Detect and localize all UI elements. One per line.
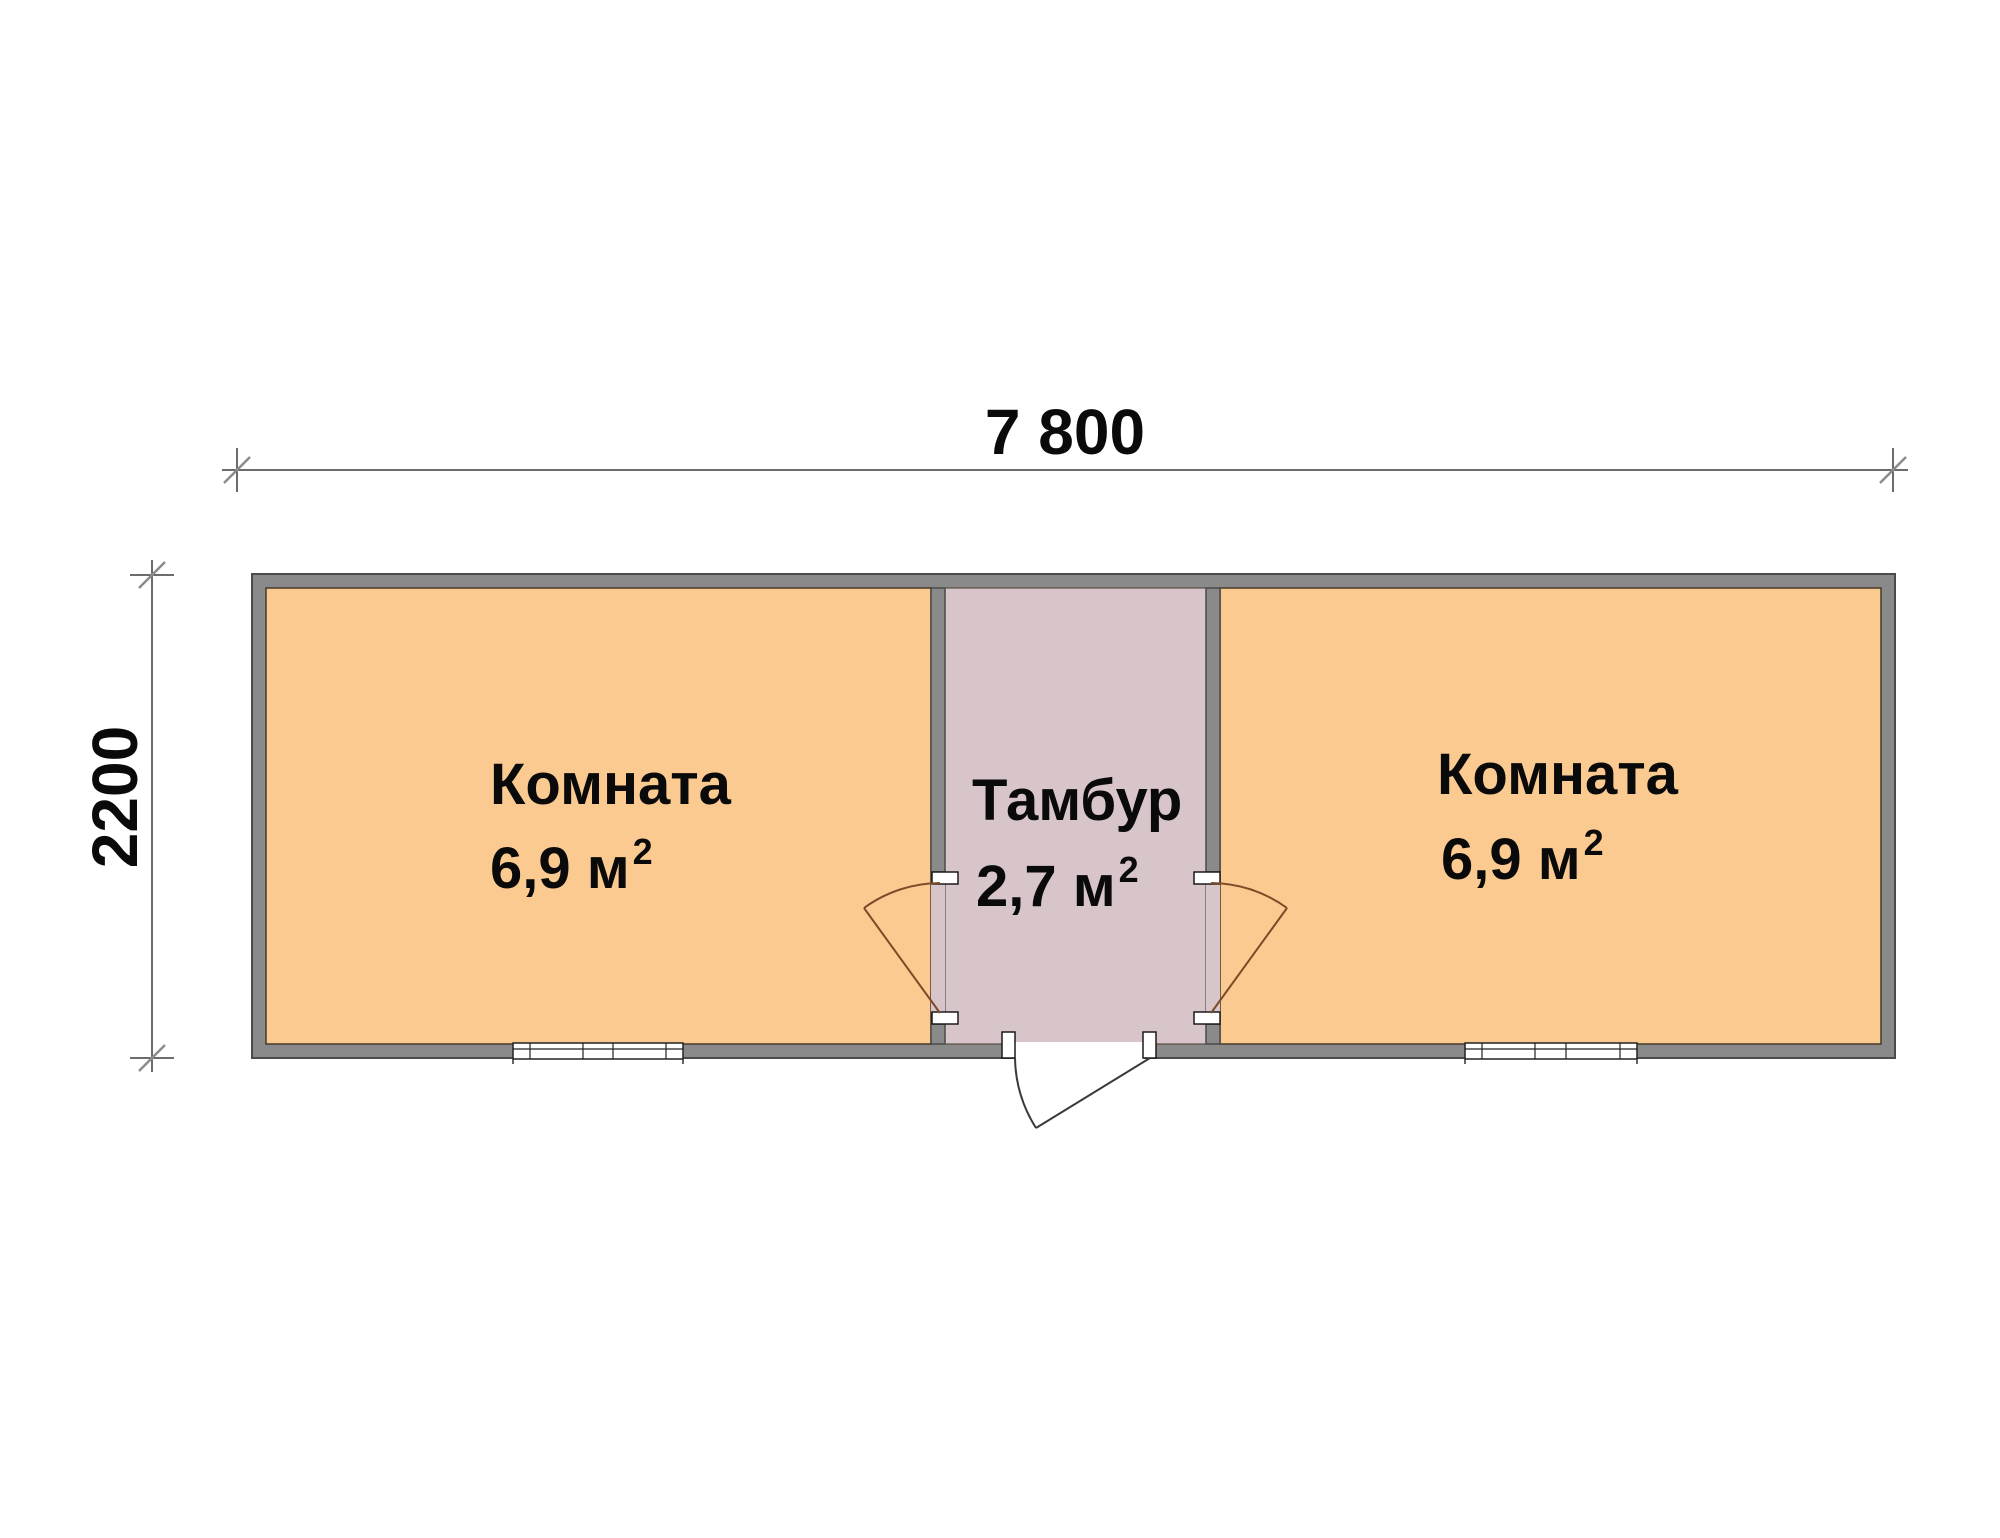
right-door-jamb-bottom: [1194, 1012, 1220, 1024]
room-right-floor: [1220, 588, 1881, 1044]
left-door-jamb-bottom: [932, 1012, 958, 1024]
entrance-door-leaf: [1036, 1058, 1150, 1128]
floor-plan-canvas: 7 800 2200 Комната 6,9 м2 Тамбур 2,7 м2 …: [0, 0, 2000, 1538]
vestibule-area-value: 2,7 м: [976, 854, 1116, 919]
window-right: [1465, 1043, 1637, 1064]
room-right-area-exponent: 2: [1584, 822, 1604, 863]
partition-right-lower: [1206, 1024, 1220, 1044]
vestibule-area-label: 2,7 м2: [976, 858, 1139, 916]
room-left-area-label: 6,9 м2: [490, 840, 653, 898]
partition-right-upper: [1206, 588, 1220, 872]
left-door-gap: [931, 884, 945, 1012]
room-left-name-label: Комната: [490, 756, 731, 814]
vestibule-name-label: Тамбур: [972, 772, 1182, 830]
window-left-frame: [513, 1043, 683, 1059]
entrance-door-opening: [1014, 1042, 1144, 1060]
entrance-door: [1015, 1058, 1150, 1128]
entrance-door-jamb-right: [1143, 1032, 1156, 1058]
entrance-door-jamb-left: [1002, 1032, 1015, 1058]
entrance-door-arc: [1015, 1058, 1036, 1128]
dimension-height-label: 2200: [80, 667, 150, 927]
room-right-area-label: 6,9 м2: [1441, 831, 1604, 889]
right-door-gap: [1206, 884, 1220, 1012]
room-right-area-value: 6,9 м: [1441, 827, 1581, 892]
room-left-area-exponent: 2: [633, 831, 653, 872]
window-left: [513, 1043, 683, 1064]
partition-left-upper: [931, 588, 945, 872]
room-right-name-label: Комната: [1437, 746, 1678, 804]
room-left-area-value: 6,9 м: [490, 836, 630, 901]
window-right-frame: [1465, 1043, 1637, 1059]
dimension-width-label: 7 800: [900, 400, 1230, 464]
partition-left-lower: [931, 1024, 945, 1044]
vestibule-area-exponent: 2: [1119, 849, 1139, 890]
